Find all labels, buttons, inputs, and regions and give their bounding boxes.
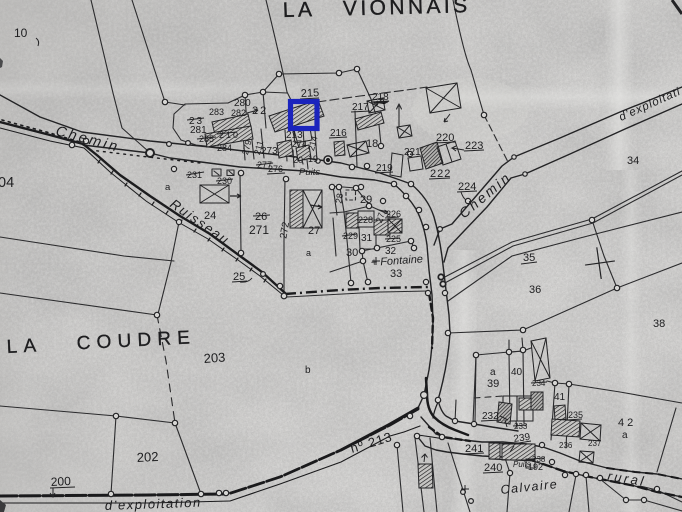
svg-text:Puits: Puits [299,167,320,178]
svg-text:04: 04 [0,175,14,191]
svg-text:273: 273 [261,146,278,157]
svg-text:d’exploitation: d’exploitation [105,495,202,512]
svg-text:28: 28 [334,193,346,205]
svg-text:236: 236 [559,441,573,450]
svg-text:36: 36 [529,284,541,296]
svg-text:235: 235 [568,410,583,420]
svg-text:30: 30 [346,247,358,259]
svg-text:283: 283 [209,107,224,117]
svg-text:282: 282 [231,108,246,118]
svg-text:202: 202 [136,449,158,465]
svg-text:34: 34 [627,155,639,167]
svg-text:a: a [622,430,628,441]
svg-text:200: 200 [50,474,71,489]
svg-text:20: 20 [293,155,303,165]
svg-text:221: 221 [404,147,421,158]
svg-text:192: 192 [528,462,543,472]
svg-text:18: 18 [366,138,378,150]
svg-text:33: 33 [390,268,402,280]
svg-text:a: a [165,182,171,193]
svg-text:26: 26 [255,211,267,223]
svg-text:41: 41 [554,392,566,403]
svg-text:19: 19 [308,154,318,164]
svg-text:24: 24 [204,210,216,222]
svg-text:203: 203 [203,350,226,366]
svg-text:a: a [306,248,311,258]
svg-text:27: 27 [308,225,320,237]
svg-text:40: 40 [511,367,523,378]
svg-text:b: b [305,365,311,376]
svg-text:234: 234 [532,379,546,388]
svg-text:a: a [490,367,496,378]
svg-text:237: 237 [588,439,602,448]
svg-text:32: 32 [385,246,397,257]
svg-text:271: 271 [249,223,269,237]
svg-text:29: 29 [360,194,372,206]
svg-text:231: 231 [187,170,202,180]
svg-text:4 2: 4 2 [618,417,633,429]
svg-text:39: 39 [487,378,499,390]
svg-text:31: 31 [361,233,373,244]
svg-text:274: 274 [292,139,307,149]
svg-text:38: 38 [653,318,665,330]
svg-text:210: 210 [219,130,240,140]
svg-text:284: 284 [217,143,232,153]
svg-text:10: 10 [14,26,28,40]
svg-text:276: 276 [268,164,283,174]
